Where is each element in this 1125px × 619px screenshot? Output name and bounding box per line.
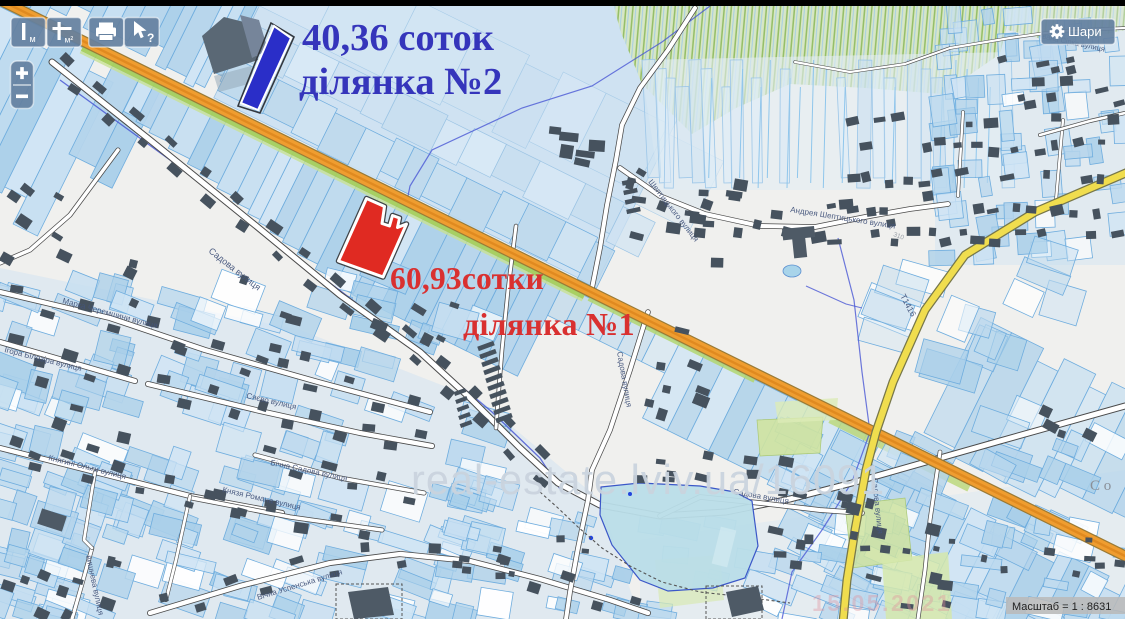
svg-text:м: м	[30, 34, 36, 44]
svg-text:Шари: Шари	[1068, 24, 1102, 39]
svg-text:?: ?	[147, 31, 154, 45]
svg-text:15.05.2021: 15.05.2021	[812, 590, 952, 616]
svg-text:40,36 соток: 40,36 соток	[302, 17, 495, 59]
svg-text:ділянка №2: ділянка №2	[299, 61, 502, 103]
svg-text:60,93сотки: 60,93сотки	[390, 261, 544, 296]
svg-text:С о: С о	[1090, 478, 1111, 494]
svg-text:real-estate.lviv.ua/16091: real-estate.lviv.ua/16091	[411, 456, 885, 503]
svg-text:Масштаб = 1 : 8631: Масштаб = 1 : 8631	[1012, 601, 1111, 613]
svg-text:ділянка №1: ділянка №1	[463, 306, 635, 342]
svg-text:м²: м²	[65, 35, 74, 45]
